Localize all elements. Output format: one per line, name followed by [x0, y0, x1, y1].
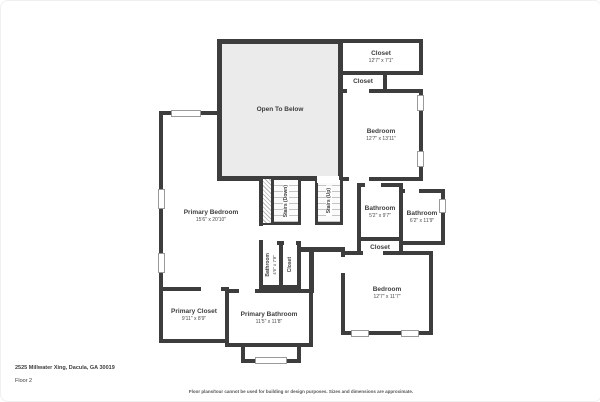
room-label: Open To Below	[257, 106, 304, 114]
stairs-label: Stairs (Up)	[326, 185, 332, 216]
room-bedroom-bottom: Bedroom 12'7" x 11'7"	[341, 251, 433, 335]
room-dims: 12'7" x 13'11"	[366, 136, 396, 142]
room-label: Primary Bedroom	[184, 209, 239, 217]
room-dims: 15'6" x 20'10"	[184, 217, 239, 223]
disclaimer-text: Floor plans/tour cannot be used for buil…	[1, 389, 600, 394]
room-primary-bathroom: Primary Bathroom 11'5" x 11'8"	[225, 289, 313, 347]
room-label: Bedroom	[373, 286, 402, 294]
window	[171, 110, 201, 117]
room-dims: 12'7" x 11'7"	[373, 294, 400, 300]
door-opening	[340, 257, 347, 273]
window	[417, 151, 424, 167]
room-dims: 12'7" x 7'1"	[369, 58, 394, 64]
door-opening	[405, 188, 419, 195]
door-opening	[258, 226, 266, 240]
stairs-label: Stairs (Down)	[283, 182, 289, 220]
floorplan-page: Primary Bedroom 15'6" x 20'10" Open To B…	[0, 0, 600, 402]
hall-wall	[309, 249, 314, 293]
window	[351, 330, 369, 337]
room-label: Bathroom	[407, 210, 438, 218]
window	[439, 199, 446, 213]
room-label: Bedroom	[367, 128, 396, 136]
room-label: Closet	[287, 257, 293, 272]
room-dims: 6'2" x 11'9"	[410, 218, 434, 224]
window	[255, 357, 287, 364]
door-opening	[201, 286, 221, 294]
stairs-up: Stairs (Up)	[315, 177, 343, 225]
floor-label: Floor 2	[15, 378, 32, 384]
door-opening	[363, 251, 383, 259]
room-label: Bathroom	[365, 205, 396, 213]
room-dims: 11'5" x 11'8"	[256, 319, 283, 325]
room-label: Closet	[371, 50, 391, 58]
door-opening	[347, 88, 369, 95]
window	[158, 253, 165, 273]
door-opening	[239, 288, 255, 296]
room-label: Bathroom	[265, 253, 271, 277]
room-bedroom-top: Bedroom 12'7" x 13'11"	[339, 89, 423, 181]
stairs-down: Stairs (Down)	[271, 177, 301, 225]
address-text: 2525 Millwater Xing, Dacula, GA 30019	[15, 365, 115, 371]
room-label: Primary Bathroom	[241, 311, 298, 319]
room-dims: 5'2" x 9'7"	[369, 213, 391, 219]
window	[417, 95, 424, 111]
room-closet-top: Closet 12'7" x 7'1"	[339, 39, 423, 75]
room-label: Primary Closet	[171, 308, 217, 316]
hall-wall	[297, 247, 345, 252]
room-open-to-below: Open To Below	[217, 39, 343, 181]
door-opening	[365, 182, 381, 189]
room-primary-closet: Primary Closet 9'11" x 8'9"	[159, 287, 229, 343]
door-opening	[317, 176, 339, 183]
window	[401, 330, 419, 337]
door-opening	[263, 240, 277, 247]
room-bathroom-hall-left: Bathroom 5'2" x 9'7"	[357, 183, 403, 241]
room-dims: 9'11" x 8'9"	[182, 316, 206, 322]
room-dims: 4'6" x 7'8"	[272, 255, 277, 275]
door-opening	[284, 240, 296, 247]
room-bathroom-hall-right: Bathroom 6'2" x 11'9"	[399, 189, 445, 245]
room-label: Closet	[353, 78, 373, 86]
window	[158, 189, 165, 209]
